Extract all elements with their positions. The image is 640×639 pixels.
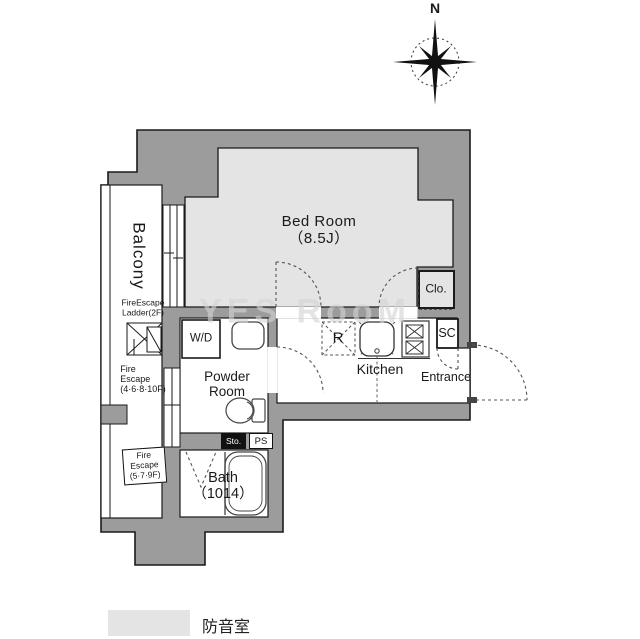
entrance-label: Entrance: [421, 370, 471, 384]
legend-soundproof-swatch: [108, 610, 190, 636]
shoe-closet-label: SC: [438, 326, 455, 340]
powder-room-label: Powder Room: [204, 369, 250, 399]
toilet: [226, 398, 265, 423]
pipe-space-label: PS: [249, 433, 273, 449]
powder-balcony-window: [164, 368, 180, 447]
storage-label: Sto.: [221, 433, 246, 449]
compass-icon: [393, 19, 477, 105]
site-watermark: YES RooM: [199, 293, 411, 332]
legend-soundproof-label: 防音室: [202, 613, 250, 637]
bedroom-balcony-window: [163, 205, 184, 307]
closet-label: Clo.: [425, 282, 446, 295]
balcony-pillar: [101, 405, 127, 424]
kitchen-label: Kitchen: [357, 362, 404, 378]
compass-north-label: N: [430, 1, 440, 17]
fire-escape-upper-label: Fire Escape (4·6·8·10F): [120, 364, 166, 394]
bath-label: Bath （1014）: [192, 470, 253, 502]
washer-dryer-label: W/D: [190, 333, 212, 346]
fire-escape-ladder-label: FireEscape Ladder(2F): [122, 298, 165, 317]
fire-escape-hatch: [127, 323, 162, 355]
fire-escape-lower-label: Fire Escape (5·7·9F): [122, 447, 167, 486]
floor-plan-page: N Balcony FireEscape Ladder(2F) Fire Esc…: [0, 0, 640, 639]
refrigerator-label: R: [333, 331, 344, 348]
bedroom-label: Bed Room （8.5J）: [282, 214, 357, 248]
balcony-label: Balcony: [129, 222, 148, 289]
